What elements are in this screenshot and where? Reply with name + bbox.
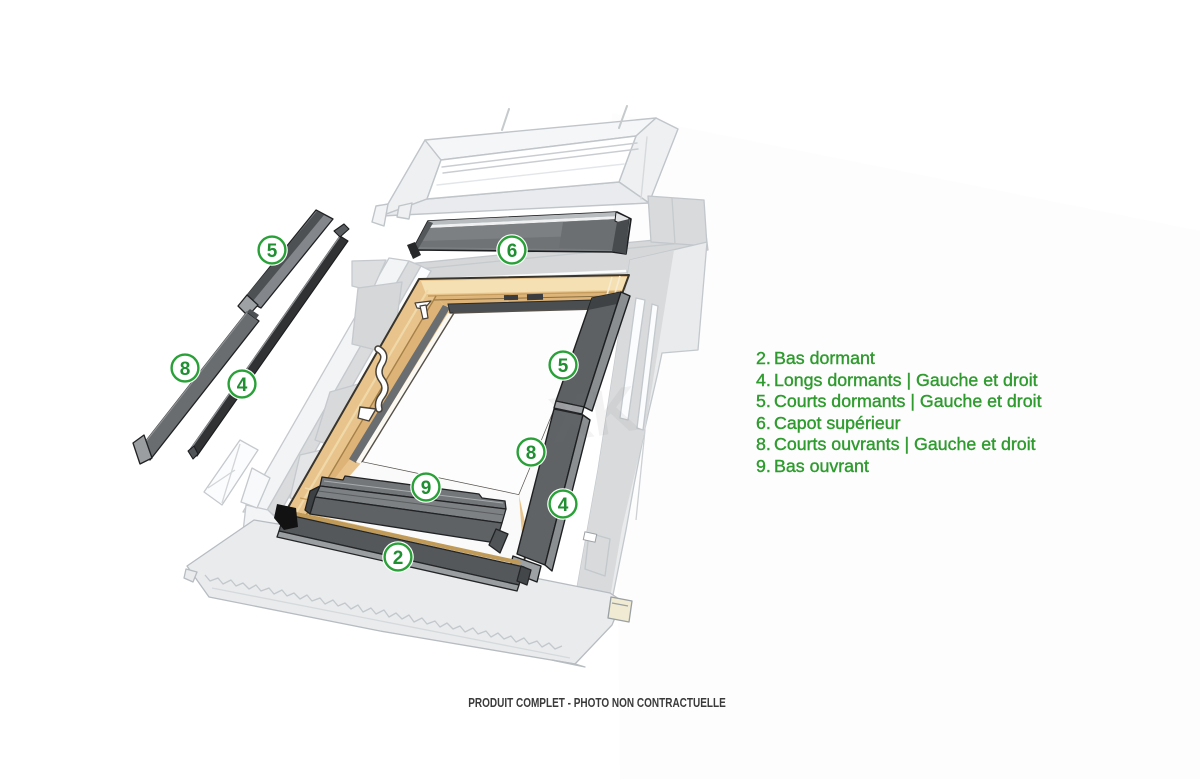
svg-text:6: 6 [507,241,518,262]
svg-text:8: 8 [180,359,191,380]
svg-text:8: 8 [526,443,537,464]
svg-text:2: 2 [393,548,404,569]
svg-text:9: 9 [421,478,432,499]
svg-text:4: 4 [558,495,569,516]
svg-text:XK: XK [544,372,643,457]
svg-text:5: 5 [558,356,569,377]
svg-text:4: 4 [237,375,248,396]
svg-text:5: 5 [267,241,278,262]
